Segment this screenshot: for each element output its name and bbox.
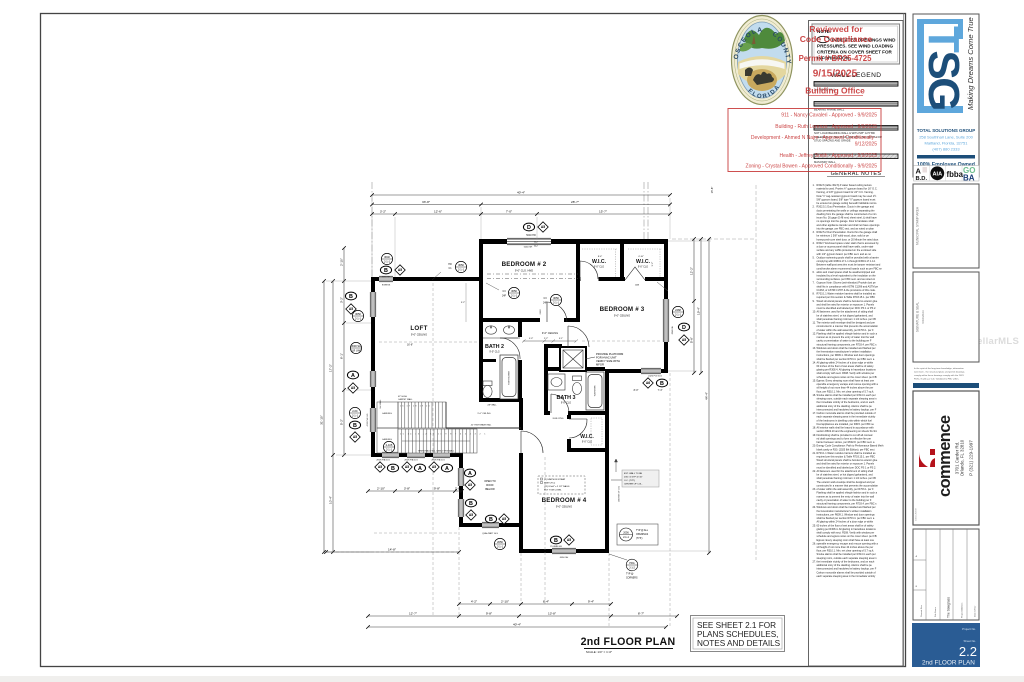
svg-text:2x6 WALL: 2x6 WALL [379, 399, 382, 409]
svg-text:and shall be rated for exterio: and shall be rated for exterior or expos… [817, 304, 875, 307]
svg-text:operable emergency escape and: operable emergency escape and rescue ope… [817, 542, 879, 545]
svg-text:glazing per R308.4. All glazin: glazing per R308.4. All glazing in hazar… [817, 369, 877, 372]
svg-text:B: B [660, 381, 664, 387]
svg-text:2-1-1: 2-1-1 [675, 312, 682, 316]
svg-text:and other appliance transfer a: and other appliance transfer and shall n… [817, 224, 881, 227]
svg-text:A5: A5 [353, 435, 357, 439]
svg-text:16'-6″: 16'-6″ [407, 344, 413, 347]
svg-text:2468: 2468 [675, 308, 681, 312]
svg-text:6050 SH: 6050 SH [560, 557, 569, 559]
svg-text:Egress: Every sleeping room sh: Egress: Every sleeping room shall have a… [817, 539, 875, 542]
svg-text:24F: 24F [502, 295, 507, 298]
svg-text:sill height of not more than 4: sill height of not more than 44 inches a… [817, 546, 874, 549]
svg-text:Energy Code Compliance: Path t: Energy Code Compliance: Path to Performa… [817, 445, 884, 448]
svg-text:Orlando, FL 32810: Orlando, FL 32810 [960, 439, 965, 476]
svg-text:shall comply with sect. R308.: shall comply with sect. R308. Verify wit… [817, 372, 875, 375]
svg-text:cavity or penetration of water: cavity or penetration of water to the bu… [817, 340, 872, 343]
svg-text:R302.5.2 Duct Penetration. Duc: R302.5.2 Duct Penetration. Ducts thru th… [817, 231, 878, 234]
svg-text:CENTER OF COL.: CENTER OF COL. [624, 484, 643, 486]
svg-text:BEDROOM # 4: BEDROOM # 4 [542, 497, 587, 504]
svg-text:R703.1.1 Water resistive barri: R703.1.1 Water resistive barriers shall … [817, 452, 877, 455]
svg-text:MUNICIPAL STAMP AREA: MUNICIPAL STAMP AREA [916, 206, 920, 245]
svg-text:HR: HR [448, 263, 452, 266]
svg-text:40'-4″: 40'-4″ [517, 191, 526, 195]
svg-text:required per this section & Ta: required per this section & Table R703.1… [817, 296, 876, 299]
svg-text:All fasteners used for the att: All fasteners used for the attachment of… [817, 470, 874, 473]
svg-text:9'-0″ CEILING: 9'-0″ CEILING [556, 505, 572, 509]
svg-text:A: A [418, 466, 422, 472]
svg-text:4.: 4. [813, 242, 815, 245]
svg-text:instructions, per R609.1. Wind: instructions, per R609.1. Window and doo… [817, 513, 876, 516]
svg-text:SIGNATURE & SEAL: SIGNATURE & SEAL [916, 302, 920, 333]
svg-text:no openings into the garage. D: no openings into the garage. Door & hard… [817, 220, 875, 223]
svg-text:911 - Nancy Cavaleri - Approve: 911 - Nancy Cavaleri - Approved - 9/9/20… [781, 113, 877, 119]
svg-text:W.I.C.: W.I.C. [592, 259, 607, 265]
svg-text:File Name: File Name [935, 606, 937, 617]
svg-text:4'-2″: 4'-2″ [471, 600, 478, 604]
svg-text:section R602.10 and the engine: section R602.10 and the engineering on s… [817, 430, 878, 433]
svg-text:BATH 2: BATH 2 [485, 344, 504, 350]
svg-text:9'-0″ CEILING: 9'-0″ CEILING [477, 413, 490, 415]
svg-text:15'-7″: 15'-7″ [599, 210, 608, 214]
svg-text:4060 P/A GLS: 4060 P/A GLS [366, 413, 369, 426]
svg-text:additional story of the dwelli: additional story of the dwelling. Alarms… [817, 564, 873, 567]
svg-text:9'-0″ CEILING: 9'-0″ CEILING [614, 314, 630, 318]
svg-text:8.: 8. [813, 293, 815, 296]
svg-text:Project No.: Project No. [962, 627, 976, 631]
svg-text:(407) 880 2333: (407) 880 2333 [932, 147, 960, 152]
svg-text:3050: 3050 [553, 296, 559, 300]
svg-text:QUAL/PART GLS: QUAL/PART GLS [482, 532, 498, 535]
svg-text:and shall be rated for exterio: and shall be rated for exterior or expos… [817, 463, 875, 466]
svg-text:D: D [527, 225, 531, 231]
svg-text:4060 SH: 4060 SH [382, 277, 391, 279]
svg-text:sill height of not more than 4: sill height of not more than 44 inches a… [817, 387, 874, 390]
svg-text:9/15/2025: 9/15/2025 [813, 69, 858, 80]
svg-text:A5: A5 [541, 225, 545, 229]
svg-text:of water within the wall assem: of water within the wall assembly, per R… [817, 329, 875, 332]
svg-text:7.: 7. [813, 282, 815, 285]
svg-text:258 Southhall Lane, Suite 200: 258 Southhall Lane, Suite 200 [919, 135, 973, 140]
svg-text:2-1-1: 2-1-1 [553, 300, 560, 304]
svg-text:the immediate vicinity of the: the immediate vicinity of the bedrooms, … [817, 401, 875, 404]
svg-text:Development - Ahmed N Najm - A: Development - Ahmed N Najm - Approved Co… [751, 135, 878, 141]
svg-text:In the spirit of the long-term: In the spirit of the long-term knowledge… [914, 367, 965, 370]
svg-text:cond/smoke alarm recommend boa: cond/smoke alarm recommend boards such a… [817, 267, 883, 270]
svg-text:CORNERS: CORNERS [626, 578, 638, 580]
svg-text:3'-8″: 3'-8″ [404, 487, 411, 491]
svg-text:10'-4″: 10'-4″ [329, 495, 333, 504]
svg-text:with 1/2″ gypsum board. per F: with 1/2″ gypsum board. per FBC sect. an… [817, 253, 872, 256]
svg-text:7'-0″: 7'-0″ [506, 210, 513, 214]
svg-text:instructions, per R609.1. Wind: instructions, per R609.1. Window and doo… [817, 354, 876, 357]
svg-text:shall comply with sect. R308.: shall comply with sect. R308. Verify wit… [817, 532, 875, 535]
svg-text:A5: A5 [432, 465, 436, 469]
svg-text:24F: 24F [543, 302, 548, 305]
svg-text:ducts penetrating the walls or: ducts penetrating the walls or ceilings … [817, 209, 876, 212]
svg-text:TOTAL SOLUTIONS GROUP: TOTAL SOLUTIONS GROUP [917, 128, 975, 133]
svg-text:Wood structural panels shall b: Wood structural panels shall be bonded w… [817, 300, 878, 303]
svg-text:5040 SH: 5040 SH [524, 247, 533, 249]
svg-text:B: B [489, 517, 493, 523]
svg-text:schedule and egress notes on t: schedule and egress notes on the cover s… [817, 535, 877, 538]
svg-text:B: B [554, 538, 558, 544]
svg-text:3030 SH: 3030 SH [351, 344, 361, 348]
svg-text:3'-2″: 3'-2″ [461, 302, 466, 304]
svg-text:33'-8″: 33'-8″ [422, 200, 431, 204]
svg-text:31'-10″: 31'-10″ [320, 414, 324, 425]
svg-text:commence: commence [936, 415, 954, 497]
svg-text:2-6C: 2-6C [352, 409, 358, 413]
svg-text:2-1-1: 2-1-1 [355, 316, 362, 320]
svg-text:structural framing components,: structural framing components, per R703.… [817, 343, 878, 346]
svg-text:fired appliances are installed: fired appliances are installed, per R315… [817, 423, 875, 426]
svg-text:interconnected and hardwired w: interconnected and hardwired w battery b… [817, 568, 877, 571]
svg-text:9'-0″ CLG: 9'-0″ CLG [582, 441, 592, 444]
svg-text:5'-1″: 5'-1″ [559, 338, 564, 340]
svg-text:2-1-1: 2-1-1 [384, 259, 391, 263]
svg-text:O.C. (TYP.): O.C. (TYP.) [624, 480, 635, 482]
svg-text:blank cavity w R30. (2025 8th: blank cavity w R30. (2025 8th Edition). … [817, 448, 875, 451]
svg-text:CENTER OF COL: CENTER OF COL [619, 485, 621, 502]
svg-text:All exterior walls shall be br: All exterior walls shall be braced in ac… [817, 427, 875, 430]
svg-text:must be identified and labeled: must be identified and labeled per DOC P… [817, 466, 877, 469]
svg-text:2.: 2. [813, 206, 815, 209]
svg-text:D: D [682, 325, 686, 331]
svg-text:Health - Jeffrey Smith - Appro: Health - Jeffrey Smith - Approved - 9/9/… [780, 153, 878, 159]
svg-text:B: B [384, 268, 388, 274]
svg-text:24F WALL: 24F WALL [487, 404, 497, 407]
svg-text:(TYP.): (TYP.) [636, 538, 643, 540]
svg-text:FL8C, 8 adtn g 2 rule. Validat: FL8C, 8 adtn g 2 rule. Validated to FBC … [914, 378, 959, 381]
svg-text:#CBC1264567: #CBC1264567 [916, 507, 918, 521]
svg-text:TUB/SHWR: TUB/SHWR [595, 385, 597, 397]
svg-text:be entered on garage ceiling b: be entered on garage ceiling beneath hab… [817, 202, 878, 205]
svg-text:insulated by a level equivalen: insulated by a level equivalent to the i… [817, 275, 877, 278]
svg-text:R302.6 (table 302.6) If water: R302.6 (table 302.6) If water based ceil… [817, 184, 873, 187]
svg-text:SEE SHEET 2.1 FOR: SEE SHEET 2.1 FOR [697, 621, 776, 630]
svg-text:A6: A6 [646, 381, 650, 385]
svg-text:A5: A5 [405, 465, 409, 469]
svg-text:BA: BA [963, 174, 975, 183]
svg-text:Wood structural panels shall b: Wood structural panels shall be bonded w… [817, 459, 878, 462]
svg-text:PROVIDE PLATFORM: PROVIDE PLATFORM [596, 352, 624, 356]
svg-text:2-1-1: 2-1-1 [352, 413, 359, 417]
svg-text:6.: 6. [813, 271, 815, 274]
svg-text:3'-2″: 3'-2″ [340, 296, 344, 303]
svg-text:2-1-1: 2-1-1 [497, 544, 504, 548]
svg-text:A5: A5 [398, 268, 402, 272]
svg-text:BATH 3: BATH 3 [556, 395, 575, 401]
svg-text:OPEN TO: OPEN TO [484, 479, 496, 483]
svg-text:imum No. 26 gage (0.48 mm) she: imum No. 26 gage (0.48 mm) sheet steel, … [817, 217, 878, 220]
svg-text:1.: 1. [813, 184, 815, 187]
svg-text:Permit # BR25-4725: Permit # BR25-4725 [799, 54, 872, 63]
svg-text:A: A [351, 373, 355, 379]
svg-text:floor, per R310.1. Min. net cl: floor, per R310.1. Min. net clear openin… [817, 390, 875, 393]
svg-text:2'-8″: 2'-8″ [455, 487, 462, 491]
svg-text:7'-4″: 7'-4″ [658, 389, 663, 392]
svg-text:B: B [353, 423, 357, 429]
svg-text:into the garage. per FBC sect: into the garage. per FBC sect. and as no… [817, 227, 875, 230]
svg-text:SWITCH at: SWITCH at [544, 482, 555, 485]
svg-text:LOFT: LOFT [410, 325, 427, 332]
svg-text:Flashing shall be applied shin: Flashing shall be applied shingle fashio… [817, 492, 878, 495]
svg-text:15 14 13 12 11 10 9 8 7 6 5 4: 15 14 13 12 11 10 9 8 7 6 5 4 3 2 1 [400, 434, 487, 436]
svg-text:2-1-1: 2-1-1 [386, 447, 393, 451]
svg-text:A5: A5 [469, 513, 473, 517]
svg-text:3050: 3050 [458, 263, 464, 267]
svg-text:13'-8″: 13'-8″ [548, 612, 557, 616]
svg-text:structural framing components,: structural framing components, per R703.… [817, 503, 878, 506]
svg-text:Note ½″ sag-resistant gypsum b: Note ½″ sag-resistant gypsum board may b… [817, 194, 878, 198]
svg-text:Maitland, Florida, 32751: Maitland, Florida, 32751 [925, 141, 969, 146]
svg-text:2056: 2056 [623, 531, 629, 534]
svg-text:shall penetrate framing minimu: shall penetrate framing minimum 1 1/4 in… [817, 477, 877, 480]
svg-text:TLR UNO: TLR UNO [350, 348, 361, 352]
svg-text:16 17 18 19 20: 16 17 18 19 20 [400, 406, 431, 408]
svg-text:be minimum 1 5/8″ solid wood,: be minimum 1 5/8″ solid wood, door, soli… [817, 235, 870, 238]
svg-text:were born - the structural pla: were born - the structural plans and per… [914, 371, 965, 374]
svg-text:R302.7 Enclosed space under st: R302.7 Enclosed space under stairs that … [817, 242, 880, 245]
svg-text:shall be flashed per section R: shall be flashed per section R703.4. per… [817, 358, 875, 361]
svg-text:PLANS SCHEDULES,: PLANS SCHEDULES, [697, 630, 778, 639]
svg-text:MFGR: MFGR [596, 363, 604, 367]
svg-text:framing, of 1/8″ gypsum board: framing, of 1/8″ gypsum board for 24″ O.… [817, 191, 874, 194]
svg-text:operable emergency escape and: operable emergency escape and rescue ope… [817, 383, 879, 386]
svg-text:2'-10″: 2'-10″ [377, 487, 386, 491]
svg-text:of water within the wall assem: of water within the wall assembly, per R… [817, 488, 875, 491]
svg-text:2-1-1: 2-1-1 [623, 536, 629, 539]
svg-text:Flashing shall be applied shin: Flashing shall be applied shingle fashio… [817, 332, 878, 335]
svg-text:Code Compliance: Code Compliance [800, 34, 873, 44]
svg-text:LANDING: LANDING [382, 438, 392, 441]
svg-text:OPENINGS: OPENINGS [636, 534, 649, 536]
svg-text:BEDROOM # 3: BEDROOM # 3 [600, 306, 645, 313]
svg-text:ed draft openings and to form: ed draft openings and to form an effecti… [817, 437, 872, 440]
svg-text:C1063, or ASTM C1787 & the pro: C1063, or ASTM C1787 & the provisions of… [817, 289, 877, 292]
svg-text:Building - Ruth Lorenzo - Appr: Building - Ruth Lorenzo - Approved - 9/9… [775, 124, 877, 130]
svg-text:dwelling from the garage shall: dwelling from the garage shall be constr… [817, 213, 878, 216]
svg-text:sleeping room, outside each se: sleeping room, outside each separate sle… [817, 398, 878, 401]
svg-text:Current Rev: Current Rev [920, 604, 923, 617]
svg-text:15'-8″: 15'-8″ [710, 187, 714, 194]
svg-text:40'-4″: 40'-4″ [513, 623, 522, 627]
svg-text:3040: 3040 [384, 255, 390, 259]
svg-text:Sheet No.: Sheet No. [964, 639, 977, 643]
svg-text:(22) 8.5x8″ x 2 1/2″ NAILS: (22) 8.5x8″ x 2 1/2″ NAILS [544, 485, 570, 488]
svg-text:the fenestration manufacturer': the fenestration manufacturer's written … [817, 351, 873, 354]
svg-text:9'-4″: 9'-4″ [588, 600, 595, 604]
svg-text:A5: A5 [378, 465, 382, 469]
svg-text:17'-2″: 17'-2″ [329, 363, 333, 372]
svg-text:AIA: AIA [932, 172, 942, 178]
svg-text:The exterior wall envelope sha: The exterior wall envelope shall be desi… [817, 481, 876, 484]
svg-text:9'-0″ CEILING: 9'-0″ CEILING [411, 333, 427, 337]
svg-text:All fasteners used for the att: All fasteners used for the attachment of… [817, 311, 874, 314]
svg-text:19'-4″: 19'-4″ [697, 306, 701, 315]
svg-text:shall be flashed per section R: shall be flashed per section R703.4. per… [817, 517, 875, 520]
svg-text:6'-1″: 6'-1″ [340, 352, 344, 359]
svg-text:schedule and egress notes on t: schedule and egress notes on the cover s… [817, 376, 877, 379]
svg-text:TSG: TSG [919, 26, 968, 109]
svg-text:60 inches of the floor of wet: 60 inches of the floor of wet areas shal… [817, 365, 875, 368]
svg-text:12'-2″: 12'-2″ [690, 266, 694, 275]
svg-text:9/12/2025: 9/12/2025 [855, 142, 877, 148]
svg-text:Smoke alarms shall be installe: Smoke alarms shall be installed per R314… [817, 394, 876, 397]
svg-text:Gypsum Note: Gloves (anti-vibr: Gypsum Note: Gloves (anti-vibration) Pro… [817, 282, 877, 285]
svg-text:PRG: PRG [629, 562, 634, 565]
svg-text:44'-4″: 44'-4″ [705, 391, 709, 400]
svg-text:2468: 2468 [635, 285, 639, 287]
svg-text:2068 OPNG: 2068 OPNG [553, 418, 564, 420]
svg-text:VERIFY SIZE WITH: VERIFY SIZE WITH [596, 359, 620, 363]
svg-text:2'-10″: 2'-10″ [501, 600, 510, 604]
svg-text:Carbon monoxide alarms shall b: Carbon monoxide alarms shall be provided… [817, 412, 876, 415]
svg-text:42" HIGH WAVE RAIL: 42" HIGH WAVE RAIL [471, 424, 492, 427]
svg-text:2R2R P/A GLS: 2R2R P/A GLS [376, 459, 390, 462]
svg-text:each separate sleeping area in: each separate sleeping area in the immed… [817, 416, 877, 419]
svg-text:A5: A5 [682, 338, 686, 342]
svg-text:2468: 2468 [540, 309, 542, 315]
svg-text:EGRESS: EGRESS [382, 285, 391, 287]
svg-text:Zoning - Crystal Bowen - Appro: Zoning - Crystal Bowen - Approved Condit… [746, 164, 878, 170]
svg-text:5040 HR: 5040 HR [526, 234, 536, 237]
svg-text:3'-2″: 3'-2″ [380, 210, 387, 214]
svg-text:8'-4″: 8'-4″ [543, 600, 550, 604]
svg-text:All glazing within 24 inches o: All glazing within 24 inches of a door e… [817, 521, 874, 524]
svg-text:be of stainless steel, or hot: be of stainless steel, or hot dipped gal… [817, 474, 874, 477]
svg-text:Between wall/post area trim mu: Between wall/post area trim must be tamp… [817, 264, 881, 267]
svg-text:barrier between stories, per R: barrier between stories, per R602.8. per… [817, 441, 876, 444]
svg-text:Smoke alarms shall be installe: Smoke alarms shall be installed per R314… [817, 553, 876, 556]
svg-text:B: B [469, 501, 473, 507]
svg-text:A: A [468, 471, 472, 477]
svg-text:R302.5.1 Duct Penetration. Duc: R302.5.1 Duct Penetration. Ducts in the … [817, 206, 875, 209]
svg-text:surface and any soffits protec: surface and any soffits protected on the… [817, 249, 877, 252]
svg-text:9'-0″ CLG: 9'-0″ CLG [594, 266, 604, 269]
svg-text:must be identified and labeled: must be identified and labeled per DOC P… [817, 307, 877, 310]
svg-text:SCALE: 1/4″ = 1'-0″: SCALE: 1/4″ = 1'-0″ [586, 650, 612, 654]
svg-text:TYP @: TYP @ [626, 574, 634, 576]
svg-text:2426 P/4 GLS: 2426 P/4 GLS [648, 376, 662, 378]
svg-text:Carbon monoxide alarms shall b: Carbon monoxide alarms shall be provided… [817, 571, 876, 574]
svg-text:3.: 3. [813, 231, 815, 234]
svg-text:B.D.: B.D. [916, 176, 928, 182]
svg-text:shall penetrate framing minimu: shall penetrate framing minimum 1 1/4 in… [817, 318, 877, 321]
svg-text:2-105: 2-105 [386, 443, 393, 447]
svg-text:A: A [916, 167, 922, 176]
svg-text:ROOF: ROOF [486, 483, 494, 487]
svg-text:Outdoor swimming pools shall b: Outdoor swimming pools shall be provided… [817, 256, 879, 259]
svg-text:2.2: 2.2 [959, 644, 977, 659]
svg-text:each separate sleeping area in: each separate sleeping area in the immed… [817, 575, 877, 578]
svg-text:required per this section & Ta: required per this section & Table R703.1… [817, 456, 876, 459]
svg-text:60 inches of the floor of wet: 60 inches of the floor of wet areas shal… [817, 524, 875, 527]
svg-text:LANDING: LANDING [382, 412, 392, 415]
svg-text:surrounding surfaces. per FBC: surrounding surfaces. per FBC sect. and … [817, 278, 876, 281]
svg-text:manner as to prevent the entry: manner as to prevent the entry of water … [817, 495, 875, 498]
svg-text:Reviewed for: Reviewed for [809, 24, 863, 34]
svg-text:2R2R P/A GLS: 2R2R P/A GLS [431, 459, 445, 462]
svg-text:NOTES AND DETAILS: NOTES AND DETAILS [697, 639, 781, 648]
svg-text:BEDROOM # 2: BEDROOM # 2 [502, 261, 547, 268]
svg-text:cavity or penetration of water: cavity or penetration of water to the bu… [817, 499, 872, 502]
svg-text:TYP @ ALL: TYP @ ALL [636, 529, 649, 532]
svg-text:3050: 3050 [355, 312, 361, 316]
svg-text:28'-7″: 28'-7″ [571, 200, 580, 204]
svg-text:material is used. Prories ¼″ g: material is used. Prories ¼″ gypsum boar… [817, 188, 878, 191]
svg-text:A5: A5 [468, 483, 472, 487]
svg-text:12'-7″: 12'-7″ [409, 612, 418, 616]
svg-text:2-1-1: 2-1-1 [458, 267, 465, 271]
svg-text:4'-10″: 4'-10″ [638, 256, 644, 258]
svg-text:(1) SIMPSON STRAP: (1) SIMPSON STRAP [544, 478, 566, 481]
svg-text:glazing per R308.4. All glazin: glazing per R308.4. All glazing in hazar… [817, 528, 877, 531]
svg-text:2nd FLOOR PLAN: 2nd FLOOR PLAN [581, 636, 676, 648]
svg-text:The exterior wall envelope sha: The exterior wall envelope shall be desi… [817, 322, 876, 325]
svg-text:TEMPORALLY ALL USING THIS WALL: TEMPORALLY ALL USING THIS WALL [418, 450, 455, 453]
svg-text:2-1-2: 2-1-2 [629, 566, 635, 569]
svg-text:5'-3″: 5'-3″ [529, 338, 534, 340]
svg-text:9'-0″ CLG: 9'-0″ CLG [561, 402, 571, 405]
svg-text:shall fits in compliance with: shall fits in compliance with ASTM C1396… [817, 285, 879, 288]
svg-text:Building Office: Building Office [805, 86, 865, 96]
svg-text:The Sawgrass: The Sawgrass [947, 597, 951, 618]
svg-text:9'-0″ CLG: 9'-0″ CLG [489, 351, 499, 354]
svg-text:P (321) 229-1997: P (321) 229-1997 [969, 440, 974, 476]
svg-text:W.I.C.: W.I.C. [580, 434, 594, 440]
svg-text:interconnected and hardwired w: interconnected and hardwired w battery b… [817, 408, 877, 411]
svg-text:42" HIGH: 42" HIGH [398, 396, 407, 398]
svg-text:the immediate vicinity of the: the immediate vicinity of the bedrooms, … [817, 561, 875, 564]
svg-text:2056: 2056 [497, 540, 503, 544]
svg-text:Making Dreams Come True: Making Dreams Come True [966, 17, 975, 110]
svg-text:W.I.C.: W.I.C. [636, 259, 651, 265]
svg-text:2nd FLOOR PLAN: 2nd FLOOR PLAN [922, 660, 975, 667]
svg-text:manner as to prevent the entry: manner as to prevent the entry of water … [817, 336, 875, 339]
svg-text:Fireblocking shall be provided: Fireblocking shall be provided to cut of… [817, 434, 873, 437]
svg-text:PLUMB GB: PLUMB GB [550, 546, 562, 548]
svg-text:of the bedrooms in dwelling un: of the bedrooms in dwelling units within… [817, 419, 873, 422]
svg-text:comply within these drawings c: comply within these drawings comply with… [914, 374, 964, 377]
svg-text:BOT TOM CONN.: BOT TOM CONN. [544, 490, 562, 492]
svg-text:2'-10″: 2'-10″ [340, 257, 344, 266]
svg-text:attics and crawl spaces shall: attics and crawl spaces shall be weather… [817, 271, 876, 274]
svg-text:5.: 5. [813, 256, 815, 259]
svg-text:2R2R P/A GLS: 2R2R P/A GLS [404, 459, 418, 462]
svg-text:A5: A5 [349, 307, 353, 311]
svg-text:9'-8″: 9'-8″ [486, 612, 493, 616]
svg-text:CARPET WALL: CARPET WALL [398, 398, 413, 401]
svg-text:9'-8″: 9'-8″ [434, 487, 441, 491]
svg-text:FOR HVAC UNIT: FOR HVAC UNIT [596, 356, 617, 360]
svg-text:12'-6″: 12'-6″ [434, 210, 443, 214]
svg-text:8'-7″: 8'-7″ [638, 612, 645, 616]
svg-text:6040 SH: 6040 SH [672, 325, 674, 334]
svg-text:be of stainless steel, or hot: be of stainless steel, or hot dipped gal… [817, 314, 874, 317]
svg-text:PRESSURES. SEE WIND LOADING: PRESSURES. SEE WIND LOADING [817, 44, 893, 49]
svg-text:constructed in a manner that p: constructed in a manner that prevents th… [817, 325, 879, 328]
svg-text:14'-8″: 14'-8″ [388, 548, 397, 552]
svg-text:sleeping room, outside each se: sleeping room, outside each separate sle… [817, 557, 878, 560]
svg-text:B: B [349, 294, 353, 300]
svg-text:5'-6″: 5'-6″ [690, 336, 694, 343]
svg-text:Date & Rev: Date & Rev [974, 605, 977, 617]
svg-text:additional story of the dwelli: additional story of the dwelling. Alarms… [817, 405, 873, 408]
svg-text:a door or access panel shall h: a door or access panel shall have walls,… [817, 246, 874, 249]
svg-text:complying with R4501.17.1.1 th: complying with R4501.17.1.1 through R450… [817, 260, 876, 263]
